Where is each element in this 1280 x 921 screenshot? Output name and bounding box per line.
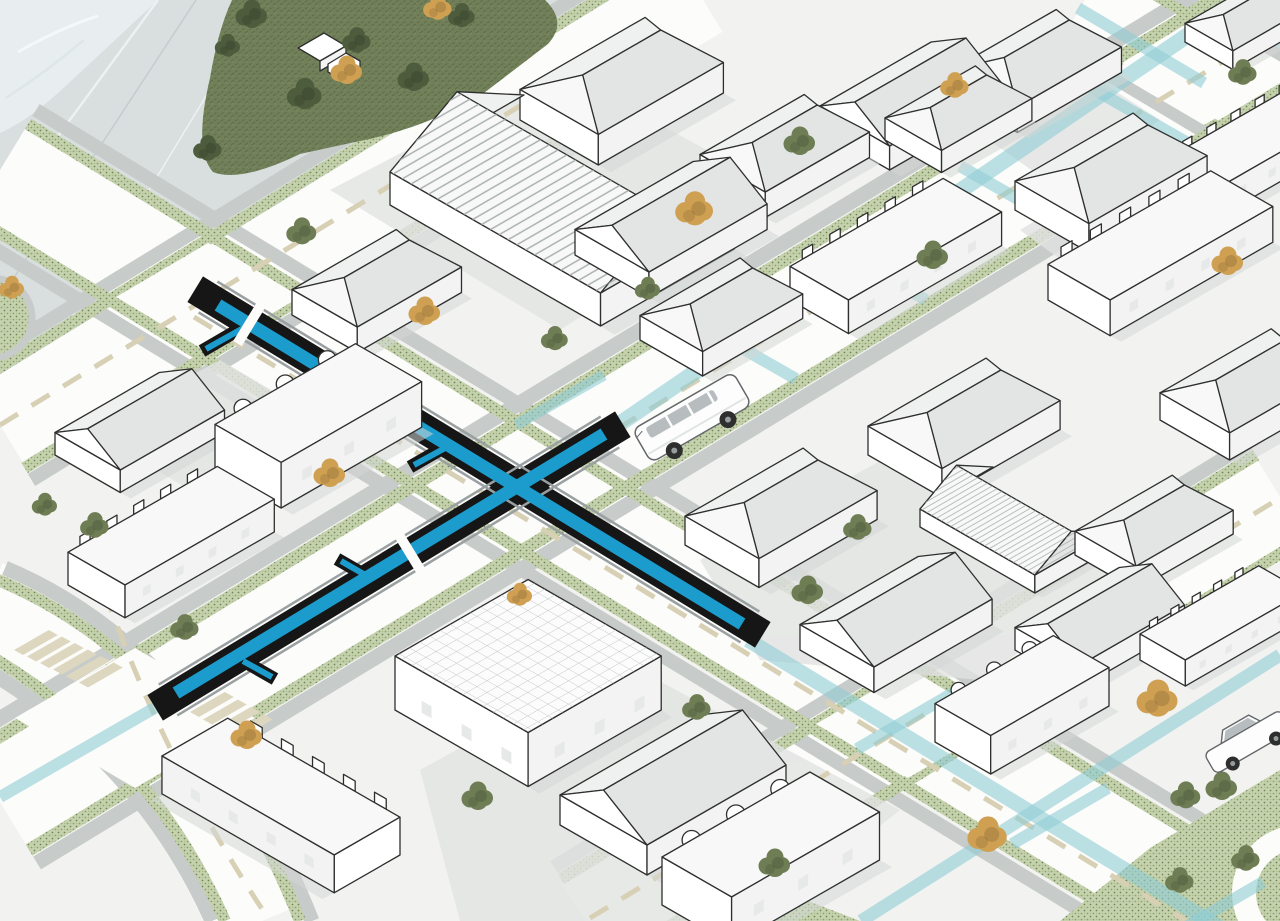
- sedan: [1198, 700, 1280, 780]
- building: [1160, 329, 1280, 467]
- illustration-page: [0, 0, 1280, 921]
- tree: [32, 493, 57, 524]
- isometric-city-illustration: [0, 0, 1280, 921]
- tree: [541, 326, 568, 359]
